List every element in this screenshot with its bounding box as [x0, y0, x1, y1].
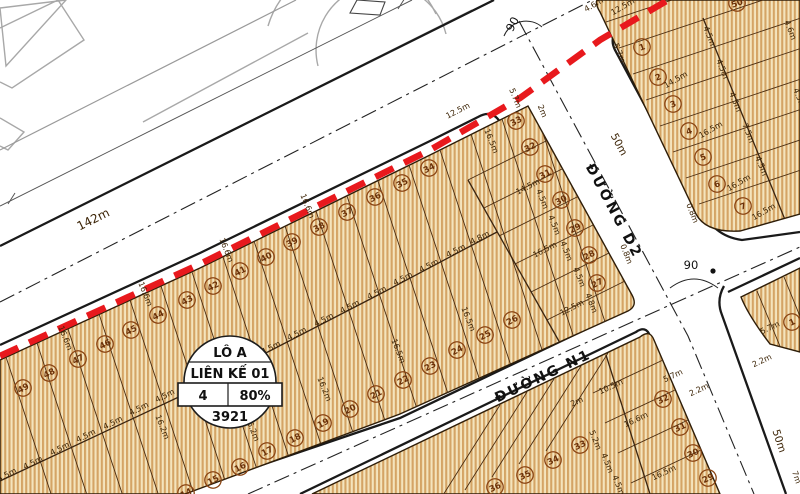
cadastral-plan-map: 3334353637383940414243444546474849272829…	[0, 0, 800, 494]
legend-density: 80%	[239, 389, 270, 404]
legend-area: 3921	[212, 410, 248, 425]
legend-floors: 4	[198, 389, 207, 404]
legend-row-type: LIÊN KẾ 01	[191, 365, 270, 382]
angle-value-label: 90	[684, 258, 699, 272]
legend-block-name: LÔ A	[213, 345, 246, 361]
angle-dot	[710, 268, 715, 273]
